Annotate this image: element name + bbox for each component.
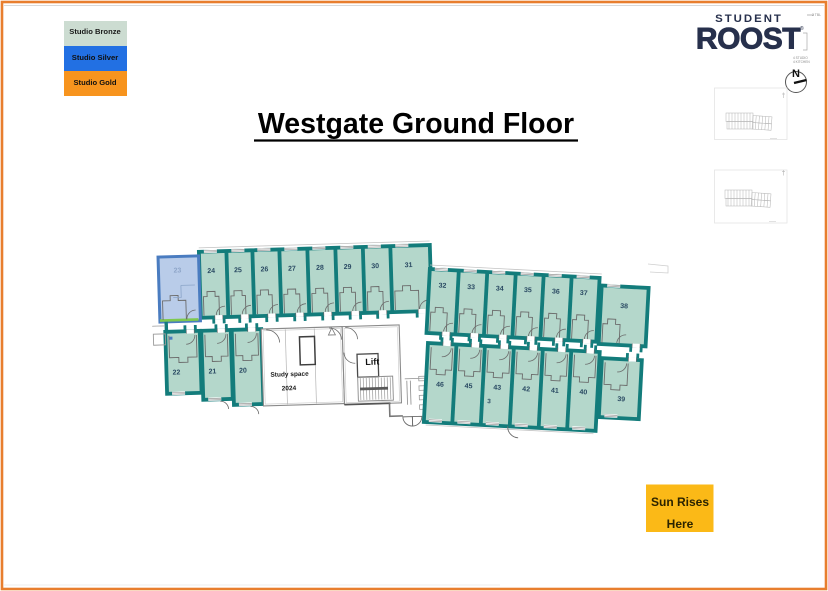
svg-text:28: 28 bbox=[316, 265, 324, 272]
svg-text:45: 45 bbox=[464, 383, 472, 390]
svg-text:Sun Rises: Sun Rises bbox=[651, 495, 709, 509]
svg-text:24: 24 bbox=[207, 268, 215, 275]
svg-text:Here: Here bbox=[667, 517, 694, 531]
svg-text:ROOST: ROOST bbox=[696, 23, 800, 56]
svg-text:31: 31 bbox=[405, 262, 413, 269]
svg-text:34: 34 bbox=[496, 285, 504, 292]
svg-text:38: 38 bbox=[620, 303, 628, 310]
svg-text:33: 33 bbox=[467, 284, 475, 291]
svg-text:2024: 2024 bbox=[282, 385, 297, 392]
svg-text:Studio Gold: Studio Gold bbox=[73, 78, 116, 87]
svg-text:46: 46 bbox=[436, 381, 444, 388]
svg-text:N: N bbox=[792, 68, 800, 80]
svg-text:41: 41 bbox=[551, 388, 559, 395]
svg-text:22: 22 bbox=[172, 369, 180, 376]
svg-text:®: ® bbox=[800, 25, 804, 32]
svg-text:30: 30 bbox=[371, 263, 379, 270]
svg-text:Studio Silver: Studio Silver bbox=[72, 53, 118, 62]
svg-text:43: 43 bbox=[493, 384, 501, 391]
svg-text:4 KITCHEN: 4 KITCHEN bbox=[793, 60, 810, 64]
svg-text:37: 37 bbox=[580, 290, 588, 297]
svg-text:20: 20 bbox=[239, 367, 247, 374]
svg-text:27: 27 bbox=[288, 265, 296, 272]
svg-text:21: 21 bbox=[208, 368, 216, 375]
svg-text:23: 23 bbox=[173, 267, 181, 274]
svg-text:Studio Bronze: Studio Bronze bbox=[69, 27, 120, 36]
svg-text:25: 25 bbox=[234, 267, 242, 274]
svg-text:29: 29 bbox=[344, 264, 352, 271]
svg-text:42: 42 bbox=[522, 386, 530, 393]
svg-text:26: 26 bbox=[260, 266, 268, 273]
svg-text:39: 39 bbox=[617, 396, 625, 403]
svg-text:36: 36 bbox=[552, 288, 560, 295]
svg-text:32: 32 bbox=[438, 282, 446, 289]
svg-text:Lift: Lift bbox=[365, 357, 379, 367]
svg-text:35: 35 bbox=[524, 287, 532, 294]
svg-text:Westgate Ground Floor: Westgate Ground Floor bbox=[258, 108, 574, 140]
svg-text:Study space: Study space bbox=[270, 371, 309, 379]
svg-text:40: 40 bbox=[579, 389, 587, 396]
